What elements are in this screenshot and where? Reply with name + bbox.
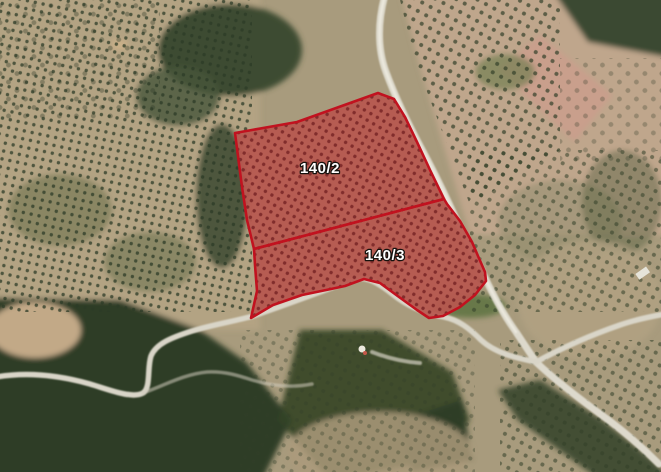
farmhouse-roof [363,351,367,355]
satellite-image: 140/2 140/3 [0,0,661,472]
satellite-map-view: 140/2 140/3 [0,0,661,472]
parcel-label-140-2: 140/2 [300,160,340,177]
parcel-label-140-3: 140/3 [365,247,405,264]
